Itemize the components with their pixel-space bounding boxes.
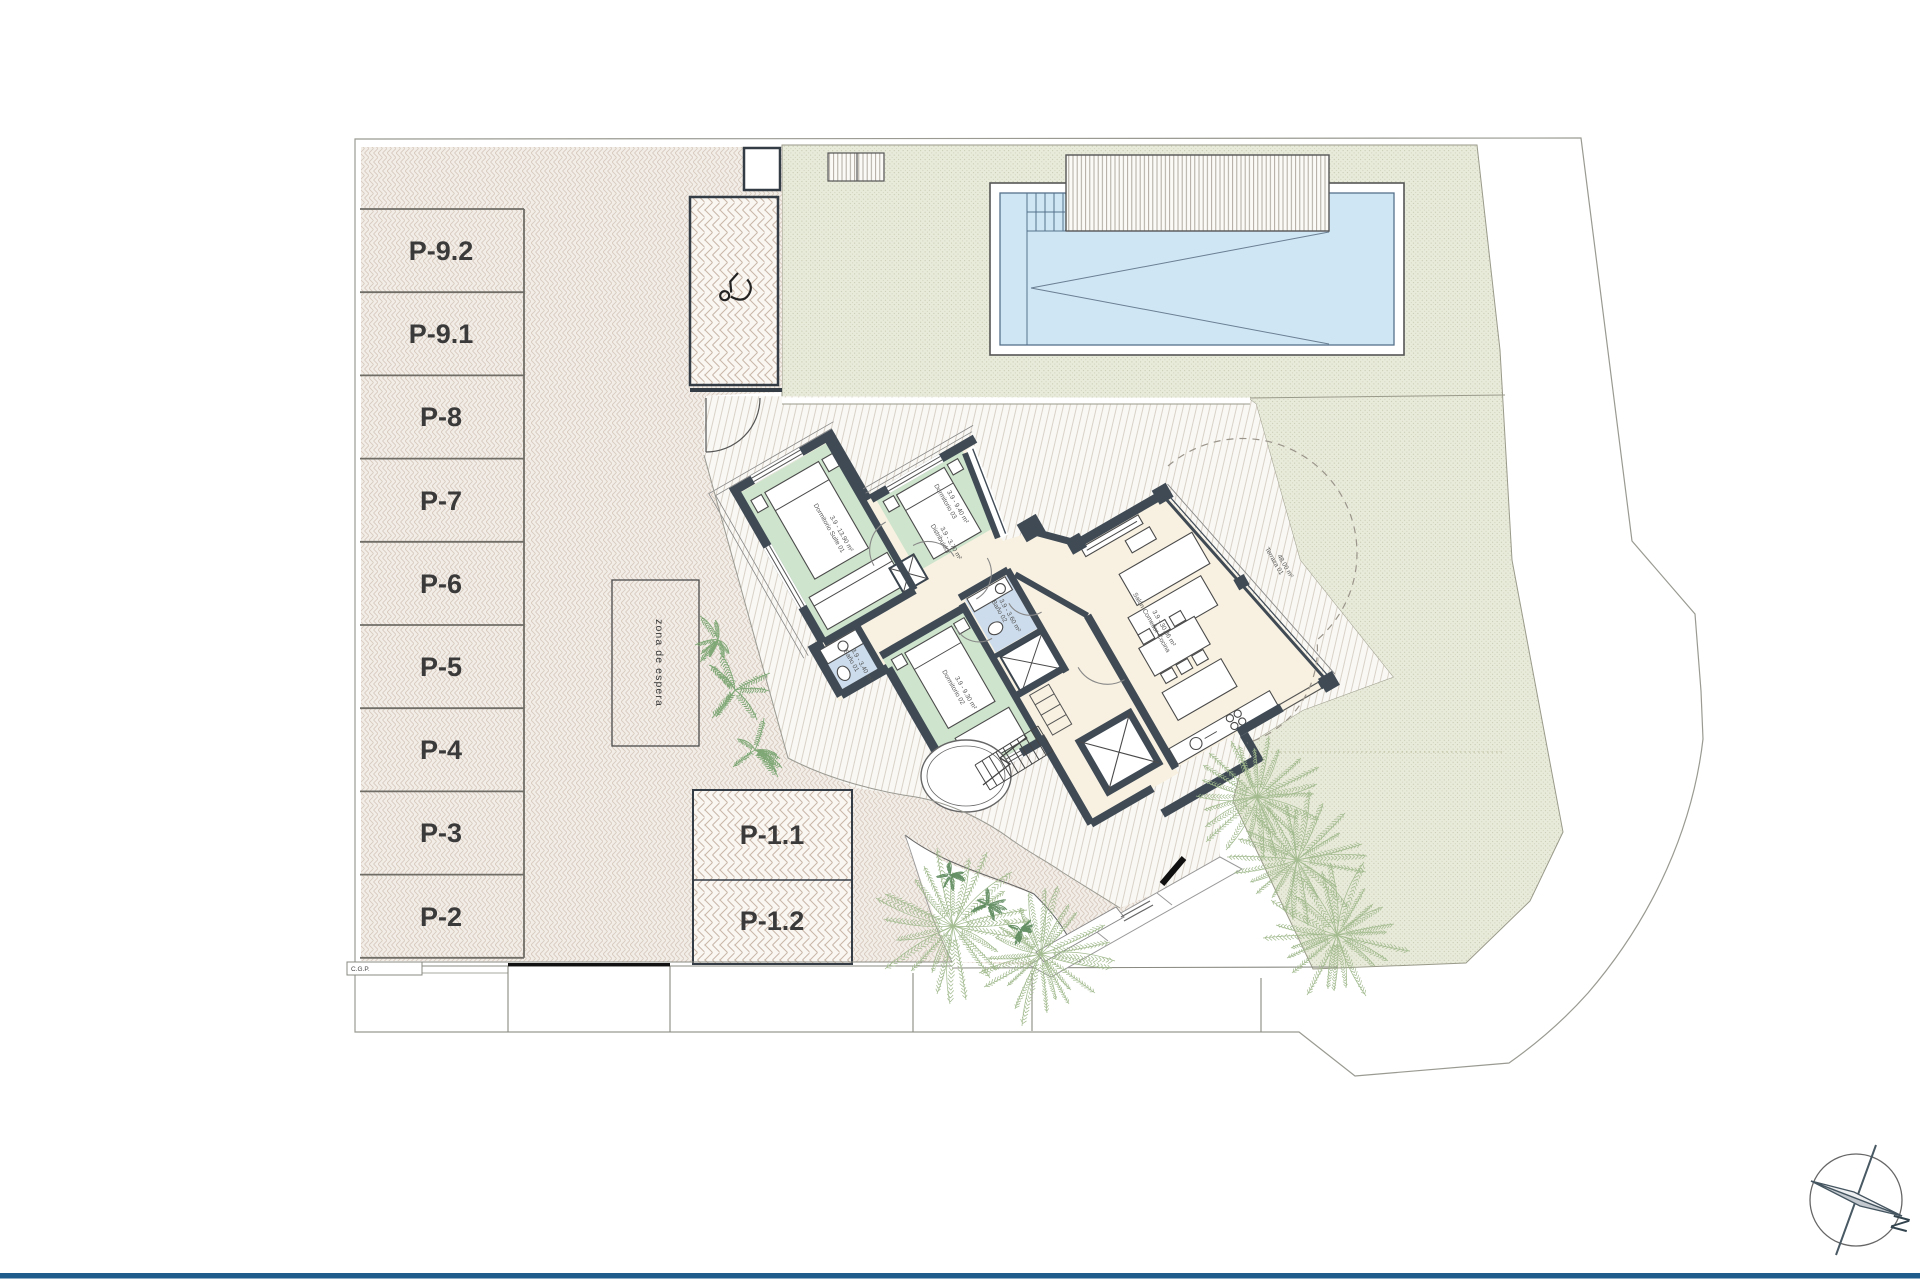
svg-text:P-5: P-5 [420,652,462,682]
svg-text:P-1.2: P-1.2 [740,906,805,936]
svg-text:P-9.1: P-9.1 [409,319,474,349]
svg-text:C.G.P.: C.G.P. [351,966,370,973]
svg-text:P-9.2: P-9.2 [409,236,474,266]
svg-text:P-3: P-3 [420,818,462,848]
svg-text:P-8: P-8 [420,402,462,432]
svg-text:P-4: P-4 [420,735,462,765]
svg-text:zona de espera: zona de espera [653,619,665,707]
svg-text:P-6: P-6 [420,569,462,599]
svg-text:P-1.1: P-1.1 [740,820,805,850]
svg-text:P-7: P-7 [420,486,462,516]
svg-text:P-2: P-2 [420,902,462,932]
